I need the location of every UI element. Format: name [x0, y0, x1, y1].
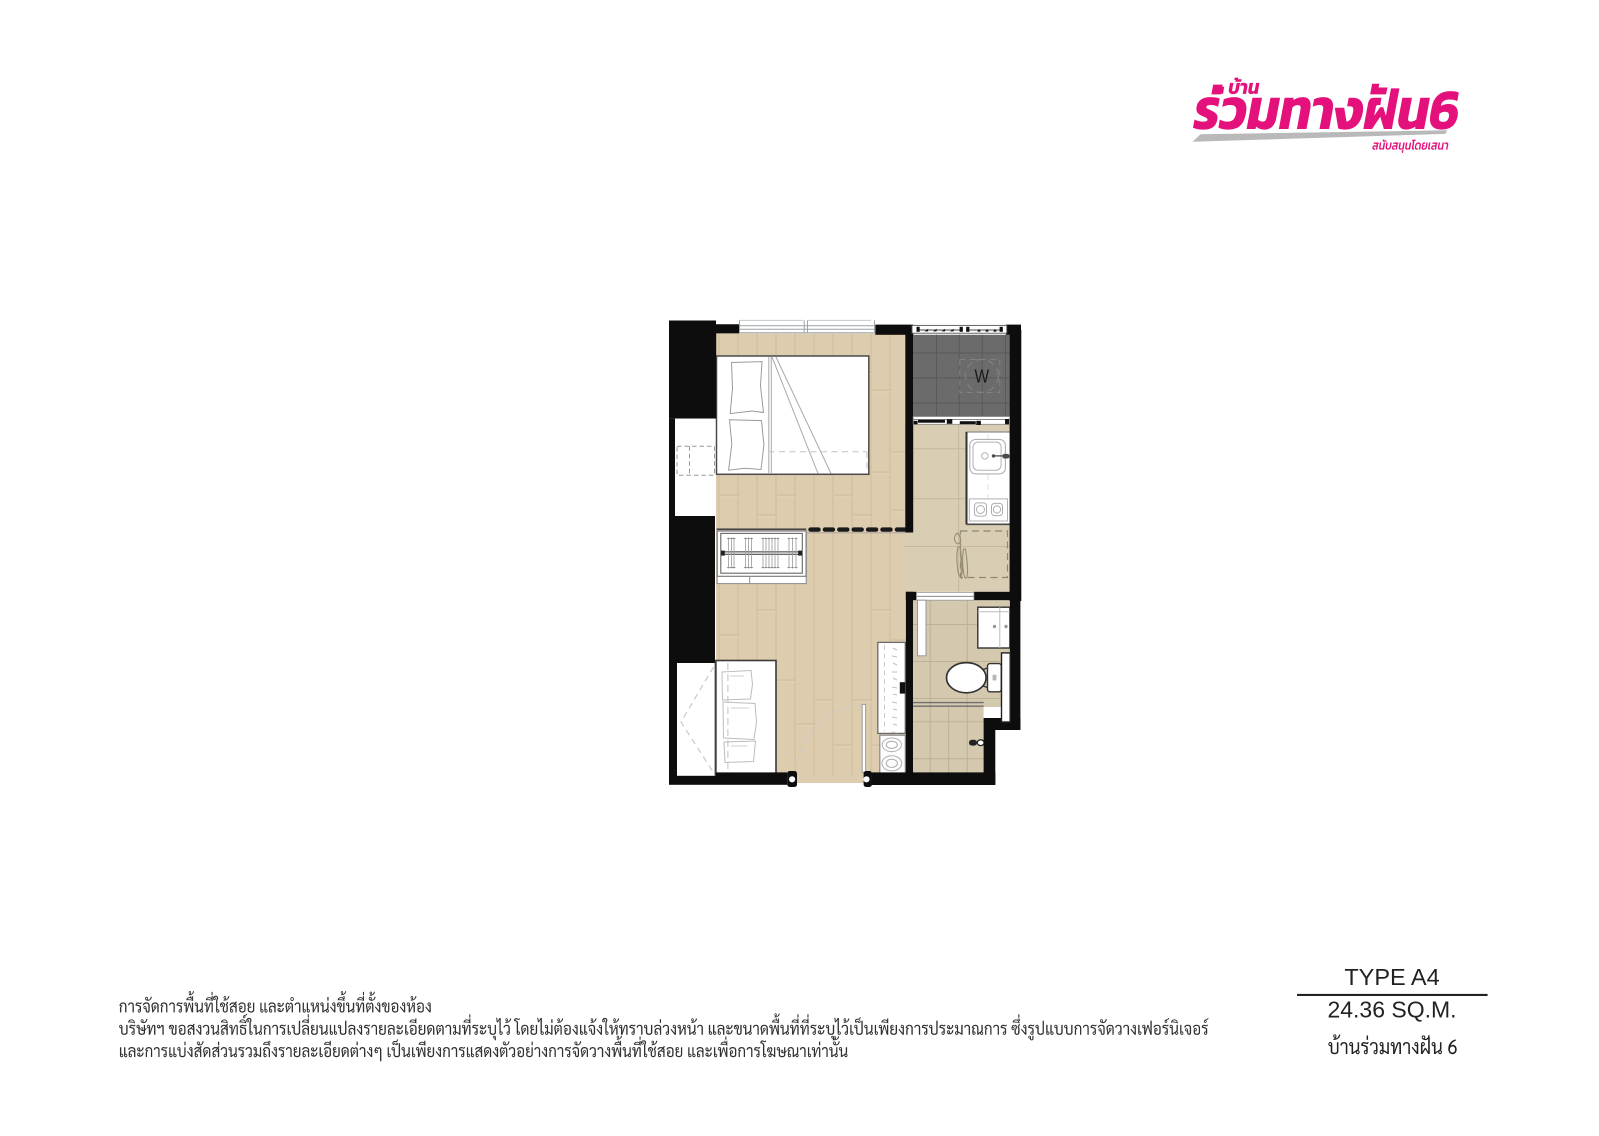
svg-text:TYPE A4: TYPE A4 [1344, 964, 1439, 990]
svg-text:W: W [975, 365, 990, 386]
svg-text:24.36 SQ.M.: 24.36 SQ.M. [1327, 996, 1456, 1022]
